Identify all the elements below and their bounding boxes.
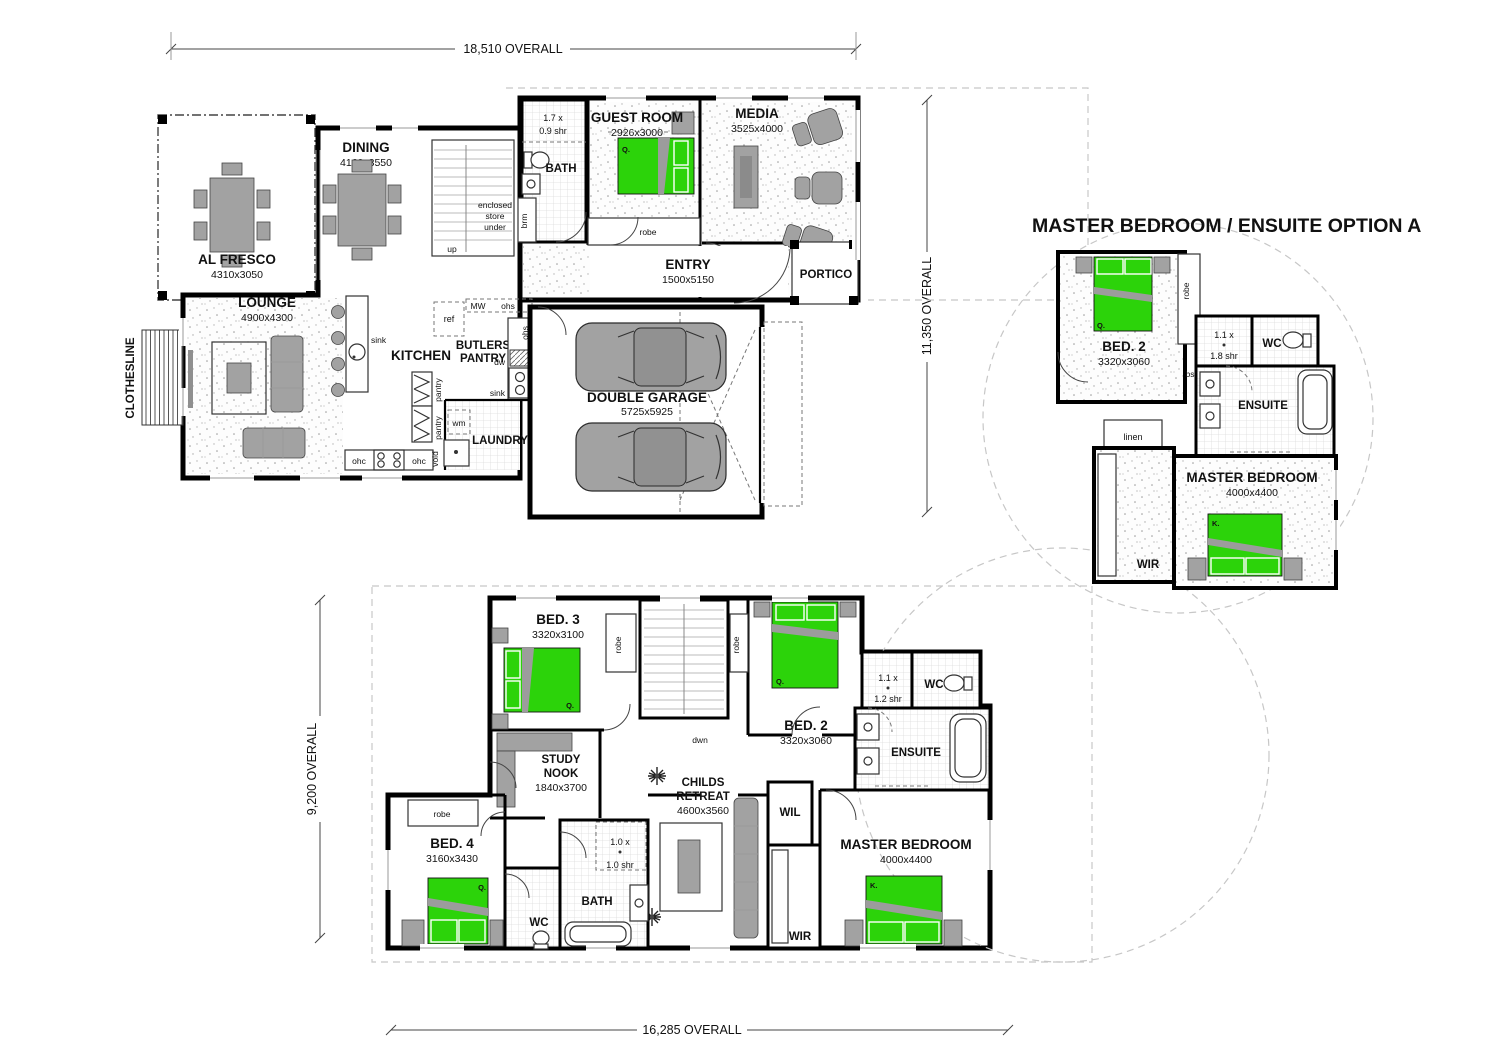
option-bs-label: bs [1186, 369, 1195, 379]
study-label-1: STUDY [542, 754, 581, 766]
bed3-size: 3320x3100 [532, 629, 584, 641]
room-al-fresco: AL FRESCO 4310x3050 [158, 115, 315, 300]
room-wc-first: WC [912, 652, 980, 708]
bed2-q: Q. [776, 677, 784, 686]
dimension-top: 18,510 OVERALL [166, 32, 861, 60]
study-size: 1840x3700 [535, 782, 587, 794]
bath-shr-note-1: 1.0 x [610, 837, 630, 847]
pantry-label-1: pantry [433, 377, 443, 401]
option-linen: linen [1104, 420, 1162, 448]
lounge-label: LOUNGE [238, 295, 296, 310]
dim-left-label: 9,200 OVERALL [305, 723, 319, 815]
option-shr-note-1: 1.1 x [1214, 330, 1234, 340]
floor-plan-sheet: 18,510 OVERALL 11,350 OVERALL 9,200 OVER… [0, 0, 1500, 1063]
wm-label: wm [451, 418, 465, 428]
bath-first-label: BATH [581, 896, 612, 908]
ohc-right: ohc [412, 456, 426, 466]
option-robe-label: robe [1181, 282, 1191, 299]
butlers-sink-label: sink [490, 388, 506, 398]
clothesline-label: CLOTHESLINE [125, 337, 137, 418]
tv-unit [188, 350, 193, 408]
option-shower: 1.1 x 1.8 shr [1196, 316, 1252, 366]
option-master-label: MASTER BEDROOM [1186, 470, 1317, 485]
room-bath-first: 1.0 x 1.0 shr BATH [560, 820, 648, 948]
option-linen-label: linen [1123, 432, 1142, 442]
broom-cupboard: brm [518, 198, 536, 242]
lounge-size: 4900x4300 [241, 312, 293, 324]
master-first-label: MASTER BEDROOM [840, 837, 971, 852]
option-bed2-size: 3320x3060 [1098, 356, 1150, 368]
option-wir-label: WIR [1137, 559, 1160, 571]
al-fresco-size: 4310x3050 [211, 269, 263, 281]
media-size: 3525x4000 [731, 123, 783, 135]
double-garage: DOUBLE GARAGE 5725x5925 [530, 307, 802, 517]
toilet [533, 931, 549, 945]
portico: PORTICO [790, 240, 858, 305]
brm-label: brm [519, 214, 529, 229]
store-note-3: under [484, 222, 506, 232]
room-wir-first: WIR [768, 845, 820, 948]
store-note-2: store [486, 211, 505, 221]
kitchen-label: KITCHEN [391, 348, 451, 363]
option-room-bed2: Q. BED. 2 3320x3060 [1058, 252, 1185, 402]
master-first-size: 4000x4400 [880, 854, 932, 866]
ensuite-first-label: ENSUITE [891, 747, 941, 759]
option-a-title: MASTER BEDROOM / ENSUITE OPTION A [1032, 215, 1421, 237]
bed4-robe-label: robe [433, 809, 450, 819]
wc-first-label: WC [924, 679, 943, 691]
butlers-label-1: BUTLERS [456, 340, 511, 352]
option-ensuite: ENSUITE [1196, 366, 1334, 456]
bed2-size: 3320x3060 [780, 735, 832, 747]
option-ensuite-label: ENSUITE [1238, 400, 1288, 412]
ens-shr-note-2: 1.2 shr [874, 694, 902, 704]
option-vanity-1 [1200, 372, 1220, 396]
guest-robe-label: robe [639, 227, 656, 237]
toilet [944, 675, 964, 691]
option-a-detail: MASTER BEDROOM / ENSUITE OPTION A Q. BED… [983, 215, 1421, 613]
dw-label: dw [494, 357, 506, 367]
childs-label-1: CHILDS [682, 777, 725, 789]
media-tv-unit [734, 146, 758, 208]
bath-shower-note-1: 1.7 x [543, 113, 563, 123]
wil-label: WIL [779, 807, 800, 819]
bath-shr-note-2: 1.0 shr [606, 860, 634, 870]
dimension-bottom: 16,285 OVERALL [386, 1023, 1013, 1037]
al-fresco-label: AL FRESCO [198, 252, 276, 267]
study-label-2: NOOK [544, 768, 579, 780]
dimension-left: 9,200 OVERALL [305, 595, 325, 943]
recliner-chair [795, 172, 842, 204]
option-master-k: K. [1212, 519, 1220, 528]
ensuite-vanity-1 [857, 714, 879, 740]
mw-label: MW [470, 301, 485, 311]
bath-shower-note-2: 0.9 shr [539, 126, 567, 136]
bed4-size: 3160x3430 [426, 853, 478, 865]
bed3-q: Q. [566, 701, 574, 710]
option-wc: WC [1252, 316, 1318, 366]
option-wc-label: WC [1262, 338, 1281, 350]
bath-vanity [630, 885, 648, 921]
bed3-robe-label: robe [613, 636, 623, 653]
childs-size: 4600x3560 [677, 805, 729, 817]
ohs-top-label: ohs [501, 301, 515, 311]
toilet [1283, 332, 1303, 348]
guest-bed-q: Q. [622, 145, 630, 154]
guest-bed: Q. [618, 138, 694, 194]
bed2-robe-label: robe [731, 636, 741, 653]
clothesline: CLOTHESLINE [125, 330, 183, 425]
option-master-size: 4000x4400 [1226, 487, 1278, 499]
bed2-label: BED. 2 [784, 718, 828, 733]
dishwasher [510, 350, 530, 366]
garage-size: 5725x5925 [621, 406, 673, 418]
dim-top-label: 18,510 OVERALL [463, 42, 562, 56]
room-laundry: wm LAUNDRY void [430, 400, 532, 470]
driveway [764, 322, 802, 506]
floor-plan-canvas: 18,510 OVERALL 11,350 OVERALL 9,200 OVER… [0, 0, 1500, 1063]
kitchen-bench: ohc ohc [345, 450, 433, 470]
laundry-label: LAUNDRY [472, 435, 528, 447]
room-entry: ENTRY 1500x5150 [590, 246, 790, 303]
dimension-right: 11,350 OVERALL [920, 95, 934, 517]
guest-label: GUEST ROOM [591, 110, 683, 125]
option-master: MASTER BEDROOM 4000x4400 K. [1174, 456, 1340, 588]
vanity [522, 174, 540, 194]
stairs-ground: up enclosed store under [432, 140, 514, 256]
ground-floor-plan: AL FRESCO 4310x3050 CLOTHESLINE DINING 4… [125, 88, 1088, 517]
wc2-label: WC [529, 917, 548, 929]
ens-shr-note-1: 1.1 x [878, 673, 898, 683]
entry-label: ENTRY [665, 257, 710, 272]
car-2 [576, 423, 726, 491]
ref-label: ref [444, 314, 455, 324]
media-label: MEDIA [735, 106, 779, 121]
option-vanity-2 [1200, 404, 1220, 428]
room-ensuite-first: ENSUITE [855, 708, 990, 790]
bath-label: BATH [545, 163, 576, 175]
room-shower-first: 1.1 x 1.2 shr [862, 652, 912, 708]
dim-right-label: 11,350 OVERALL [920, 257, 934, 355]
childs-label-2: RETREAT [676, 791, 729, 803]
stairs-up-label: up [447, 244, 457, 254]
entry-size: 1500x5150 [662, 274, 714, 286]
option-bed2-label: BED. 2 [1102, 339, 1146, 354]
sofa-seats [243, 428, 305, 458]
childs-sofa [734, 798, 758, 938]
ensuite-vanity-2 [857, 748, 879, 774]
option-wir: WIR [1094, 448, 1174, 582]
childs-tv [678, 840, 700, 893]
wir-first-label: WIR [789, 931, 812, 943]
dim-bottom-label: 16,285 OVERALL [642, 1023, 741, 1037]
guest-size: 2926x3000 [611, 127, 663, 139]
master-k: K. [870, 881, 878, 890]
coffee-table [227, 363, 251, 393]
option-bed2-q: Q. [1097, 321, 1105, 330]
store-note-1: enclosed [478, 200, 512, 210]
bed4-q: Q. [478, 883, 486, 892]
dining-label: DINING [342, 140, 389, 155]
car-1 [576, 323, 726, 391]
pantry-label-2: pantry [433, 415, 443, 439]
island-sink-label: sink [371, 335, 387, 345]
room-wc2-first: WC [505, 868, 560, 949]
room-wil: WIL [768, 782, 812, 845]
bed4-label: BED. 4 [430, 836, 474, 851]
bed3-label: BED. 3 [536, 612, 580, 627]
portico-label: PORTICO [800, 269, 852, 281]
stairs-dwn-label: dwn [692, 735, 708, 745]
first-floor-plan: dwn robe BED. 3 3320x3100 Q. robe Q. [372, 548, 1269, 962]
option-shr-note-2: 1.8 shr [1210, 351, 1238, 361]
void-label: void [430, 451, 440, 467]
ohc-left: ohc [352, 456, 366, 466]
sofa-chaise [271, 336, 303, 412]
garage-label: DOUBLE GARAGE [587, 390, 707, 405]
